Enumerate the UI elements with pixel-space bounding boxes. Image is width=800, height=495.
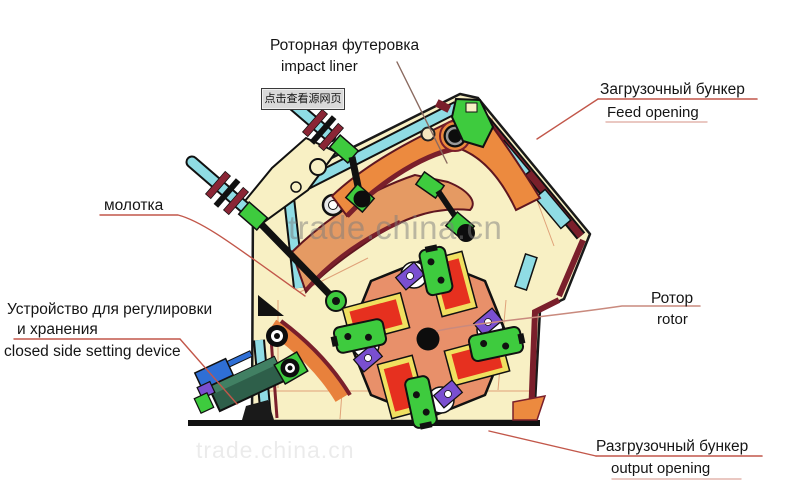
label-rotor-en: rotor: [657, 311, 688, 328]
label-output-opening-en: output opening: [611, 460, 710, 477]
label-setting-device-ru2: и хранения: [17, 321, 98, 338]
label-feed-opening-ru: Загрузочный бункер: [600, 81, 745, 98]
impact-crusher-diagram: [0, 0, 800, 495]
label-setting-device-ru1: Устройство для регулировки: [7, 301, 212, 318]
rotor-shaft: [417, 328, 440, 351]
label-feed-opening-en: Feed opening: [607, 104, 699, 121]
view-source-badge[interactable]: 点击查看源网页: [261, 88, 345, 110]
label-output-opening-ru: Разгрузочный бункер: [596, 438, 748, 455]
watermark-text-faint: trade.china.cn: [196, 437, 354, 464]
watermark-text: trade.china.cn: [288, 209, 502, 247]
label-impact-liner-ru: Роторная футеровка: [270, 37, 419, 54]
label-rotor-ru: Ротор: [651, 290, 693, 307]
base-line: [188, 420, 540, 426]
label-hammer-ru: молотка: [104, 197, 163, 214]
page: trade.china.cn trade.china.cn 点击查看源网页 Ро…: [0, 0, 800, 495]
label-setting-device-en: closed side setting device: [4, 343, 181, 360]
label-impact-liner-en: impact liner: [281, 58, 358, 75]
